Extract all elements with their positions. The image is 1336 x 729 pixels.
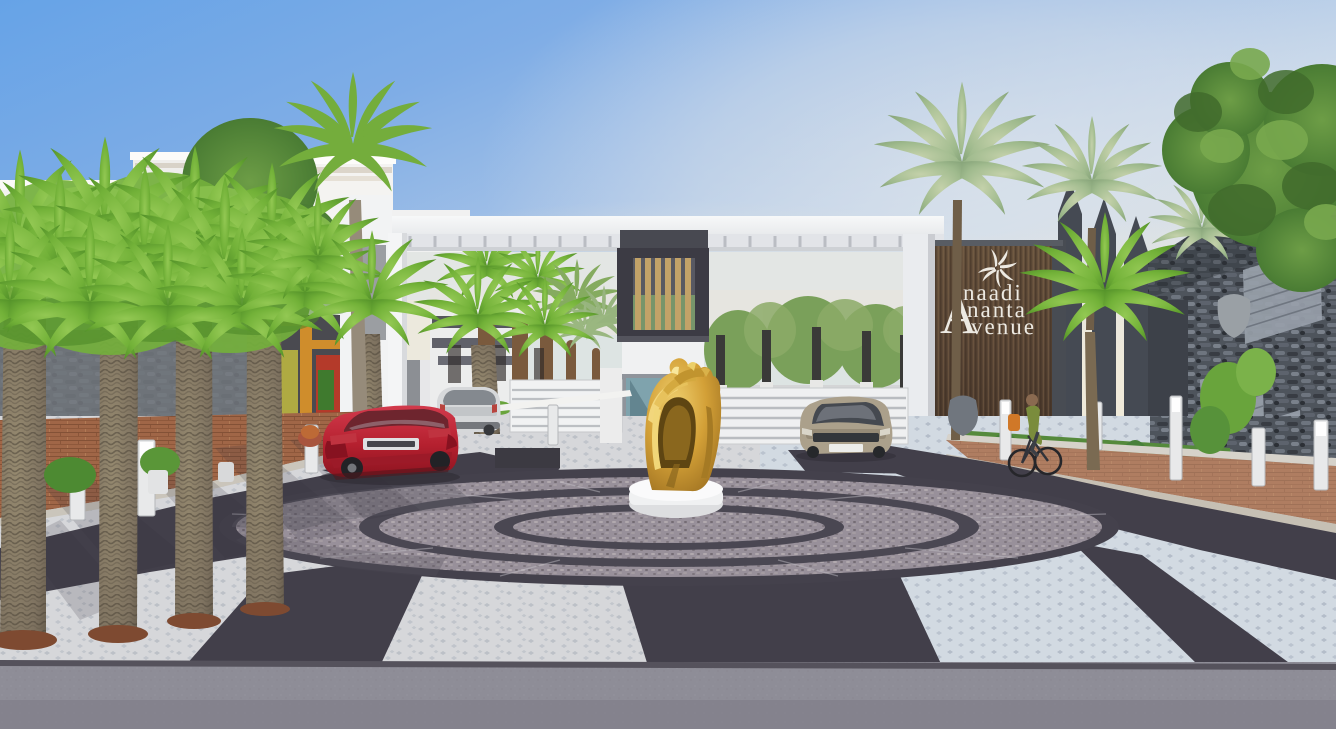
svg-text:venue: venue: [971, 314, 1036, 339]
